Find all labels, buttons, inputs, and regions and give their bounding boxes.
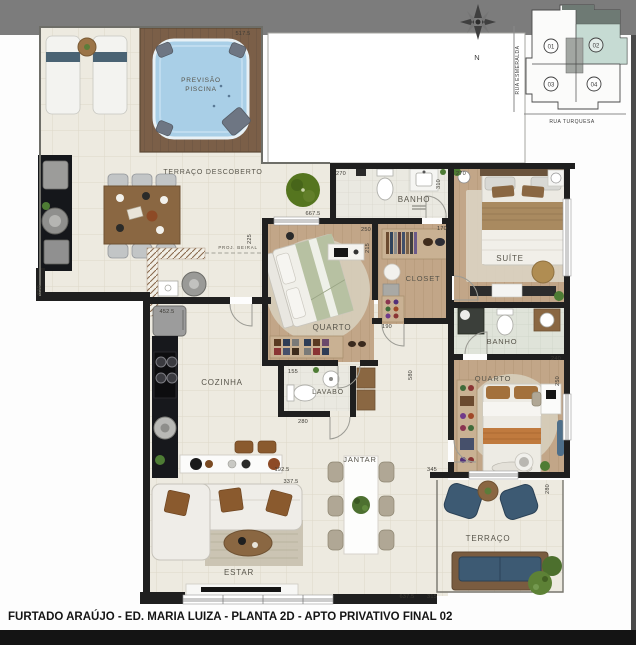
dimension-label: 580 [408, 370, 414, 380]
terrace-dining-set [104, 174, 180, 258]
room-label-suite: SUÍTE [496, 254, 524, 263]
footer-title: FURTADO ARAÚJO - ED. MARIA LUIZA - PLANT… [8, 610, 452, 623]
dimension-label: 190 [382, 324, 392, 330]
dimension-label: 240 [551, 356, 561, 362]
dimension-label: 170 [437, 226, 447, 232]
room-label-lavabo: LAVABO [312, 389, 344, 396]
dimension-label: 215 [365, 243, 371, 253]
room-label-terraco-descoberto: TERRAÇO DESCOBERTO [163, 169, 262, 176]
tree-icon [286, 173, 320, 207]
dimension-label: 250 [555, 376, 561, 386]
dimension-label: 225 [247, 234, 253, 244]
dimension-label: 345 [427, 467, 437, 473]
stool [235, 441, 253, 453]
dimension-label: 280 [298, 419, 308, 425]
pouf [532, 261, 554, 283]
floor-plan-canvas: TERRAÇO DESCOBERTO PREVISÃO PISCINA BANH… [0, 0, 636, 645]
outdoor-kitchen [38, 155, 72, 271]
plant-icon [540, 461, 550, 471]
dimension-label: 270 [456, 171, 466, 177]
room-label-banho1: BANHO [398, 195, 430, 204]
dimension-label: 452.5 [160, 309, 175, 315]
coffee-table [224, 530, 272, 556]
room-label-closet: CLOSET [406, 274, 441, 283]
dimension-label: 637.5 [400, 594, 415, 600]
wardrobe [457, 380, 477, 472]
closet-shelf [382, 296, 404, 322]
room-label-cozinha: COZINHA [201, 378, 243, 387]
room-label-banho2: BANHO [487, 337, 518, 346]
toilet [497, 315, 513, 335]
dining-area [328, 456, 394, 554]
plant-icon [42, 202, 50, 210]
toilet [377, 178, 393, 200]
terrace-sink [158, 281, 178, 296]
tv [201, 587, 281, 592]
desk-chair [532, 392, 541, 406]
plant-icon [528, 571, 552, 595]
adjacent-unit-area [268, 33, 525, 163]
dimension-label: 315 [427, 594, 437, 600]
compass-north-label: N [474, 53, 479, 62]
room-label-terraco: TERRAÇO [466, 534, 511, 543]
stool [258, 441, 276, 453]
dimension-label: 630 [37, 285, 43, 295]
dimension-label: 250 [361, 227, 371, 233]
unit-01-label: 01 [548, 45, 555, 51]
key-plan-core [566, 38, 583, 73]
dimension-label: 310 [436, 179, 442, 189]
unit-03-label: 03 [548, 83, 555, 89]
room-label-quarto2: QUARTO [475, 374, 512, 383]
ottoman [384, 264, 400, 280]
dimension-label: 270 [336, 171, 346, 177]
unit-04-label: 04 [591, 83, 598, 89]
dimension-label: 192.5 [275, 467, 290, 473]
room-label-quarto1: QUARTO [313, 323, 352, 332]
dimension-label: 155 [288, 369, 298, 375]
floor-plan-page: TERRAÇO DESCOBERTO PREVISÃO PISCINA BANH… [0, 0, 636, 645]
room-label-estar: ESTAR [224, 568, 254, 577]
street-label-turquesa: RUA TURQUESA [549, 119, 595, 125]
dimension-label: 280 [545, 484, 551, 494]
bathroom-2 [458, 308, 560, 335]
street-label-esmeralda: RUA ESMERALDA [515, 45, 521, 94]
dimension-label: 517.5 [236, 31, 251, 37]
room-label-jantar: JANTAR [343, 455, 376, 464]
label-proj-beiral: PROJ. BEIRAL [218, 245, 257, 250]
dimension-label: 337.5 [284, 479, 299, 485]
room-label-pool-1: PREVISÃO [181, 75, 221, 84]
unit-02-label: 02 [593, 44, 600, 50]
bottom-black-bar [0, 630, 636, 645]
dimension-label: 667.5 [306, 211, 321, 217]
plant-icon [440, 169, 446, 175]
right-edge-strip [631, 35, 636, 631]
room-label-pool-2: PISCINA [185, 86, 217, 93]
plant-icon [352, 496, 370, 514]
